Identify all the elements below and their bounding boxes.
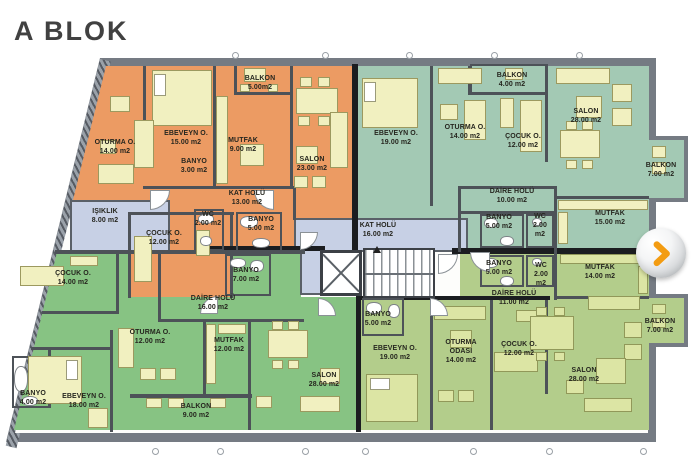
furniture xyxy=(288,321,299,330)
wall xyxy=(290,66,293,188)
furniture xyxy=(536,352,547,361)
furniture xyxy=(652,146,666,158)
floor-plan-page: A BLOK OTURMA O.14.00 m2EBEVEYN O.15.00 … xyxy=(0,0,700,466)
fixture xyxy=(200,236,212,246)
furniture xyxy=(268,84,278,92)
furniture xyxy=(458,390,474,402)
furniture xyxy=(272,321,283,330)
dimension-tick xyxy=(546,448,553,455)
fixture xyxy=(252,238,270,248)
furniture xyxy=(296,88,338,114)
wall xyxy=(293,186,296,220)
wall xyxy=(110,330,113,432)
furniture xyxy=(134,120,154,168)
furniture xyxy=(494,352,538,372)
dimension-tick xyxy=(491,52,498,59)
wall xyxy=(158,252,161,322)
wall xyxy=(248,322,251,430)
furniture xyxy=(554,352,565,361)
furniture xyxy=(110,96,130,112)
furniture xyxy=(536,307,547,316)
floor-plan: OTURMA O.14.00 m2EBEVEYN O.15.00 m2BANYO… xyxy=(0,0,700,466)
fixture xyxy=(230,258,246,268)
wall xyxy=(556,196,649,199)
furniture xyxy=(140,368,156,380)
furniture xyxy=(240,144,264,166)
furniture xyxy=(566,121,577,130)
wall xyxy=(554,252,557,300)
wall xyxy=(143,66,146,128)
wall xyxy=(430,66,433,206)
furniture xyxy=(240,84,250,92)
furniture xyxy=(530,316,574,350)
dimension-tick xyxy=(640,448,647,455)
furniture xyxy=(624,322,642,338)
furniture xyxy=(438,68,482,84)
wall xyxy=(458,186,556,189)
dimension-tick xyxy=(322,52,329,59)
dimension-tick xyxy=(302,448,309,455)
furniture xyxy=(300,396,340,412)
fixture xyxy=(532,258,542,266)
furniture xyxy=(505,68,523,80)
furniture xyxy=(566,380,584,394)
furniture xyxy=(330,112,348,168)
fixture xyxy=(14,366,28,392)
dimension-tick xyxy=(217,448,224,455)
stair-landing-line xyxy=(365,273,433,275)
dimension-tick xyxy=(470,448,477,455)
furniture xyxy=(584,398,632,412)
wall xyxy=(128,212,131,298)
wall xyxy=(143,186,293,189)
furniture xyxy=(464,100,486,140)
fixture xyxy=(500,236,514,246)
furniture xyxy=(582,121,593,130)
fixture xyxy=(500,276,514,286)
wall xyxy=(42,311,118,314)
elevator-shaft xyxy=(320,250,362,296)
furniture xyxy=(244,68,266,82)
chevron-right-icon xyxy=(644,236,678,270)
furniture xyxy=(320,368,340,384)
dimension-tick xyxy=(576,52,583,59)
furniture xyxy=(450,330,472,348)
furniture xyxy=(70,256,98,266)
furniture xyxy=(588,296,640,310)
wall xyxy=(430,300,433,430)
furniture xyxy=(20,266,64,286)
fixture xyxy=(388,304,400,318)
fixture xyxy=(250,260,264,272)
furniture xyxy=(288,360,299,369)
wall xyxy=(234,66,237,94)
furniture xyxy=(318,77,330,87)
furniture xyxy=(624,344,642,360)
furniture xyxy=(558,200,648,210)
wall xyxy=(352,64,358,252)
furniture xyxy=(558,212,568,244)
wall xyxy=(116,252,119,314)
furniture xyxy=(652,304,666,314)
furniture xyxy=(100,140,116,154)
fixture xyxy=(22,396,38,406)
furniture xyxy=(364,82,376,102)
furniture xyxy=(160,368,176,380)
wall xyxy=(234,92,292,95)
furniture xyxy=(66,360,78,380)
furniture xyxy=(652,318,666,328)
dimension-tick xyxy=(406,52,413,59)
furniture xyxy=(612,108,632,126)
furniture xyxy=(218,324,246,334)
furniture xyxy=(294,176,308,188)
furniture xyxy=(146,398,162,408)
fixture xyxy=(484,218,498,228)
furniture xyxy=(272,360,283,369)
fixture xyxy=(198,214,214,224)
hall-column-zone xyxy=(300,250,322,295)
furniture xyxy=(438,390,454,402)
fixture xyxy=(366,302,382,314)
furniture xyxy=(134,236,152,282)
furniture xyxy=(312,176,326,188)
next-arrow-button[interactable] xyxy=(636,228,686,278)
furniture xyxy=(296,146,318,164)
wall xyxy=(31,347,111,350)
furniture xyxy=(98,164,134,184)
furniture xyxy=(556,68,610,84)
furniture xyxy=(652,162,666,174)
furniture xyxy=(520,100,542,152)
dimension-tick xyxy=(232,52,239,59)
furniture xyxy=(560,130,600,158)
fixture xyxy=(532,218,542,226)
furniture xyxy=(300,77,312,87)
furniture xyxy=(298,116,310,126)
stair-direction-arrow xyxy=(373,246,381,253)
furniture xyxy=(566,160,577,169)
furniture xyxy=(168,398,184,408)
furniture xyxy=(582,160,593,169)
wall xyxy=(356,295,361,432)
furniture xyxy=(118,328,134,368)
furniture xyxy=(210,398,226,408)
furniture xyxy=(370,378,390,390)
furniture xyxy=(576,96,602,118)
furniture xyxy=(560,254,648,264)
furniture xyxy=(612,84,632,102)
wall xyxy=(490,300,493,430)
furniture xyxy=(206,324,216,384)
furniture xyxy=(88,408,108,428)
furniture xyxy=(440,104,458,120)
furniture xyxy=(256,396,272,408)
furniture xyxy=(500,98,514,128)
furniture xyxy=(216,96,228,184)
furniture xyxy=(596,358,626,384)
furniture xyxy=(318,116,330,126)
furniture xyxy=(554,307,565,316)
furniture xyxy=(154,74,166,96)
fixture xyxy=(240,216,258,228)
dimension-tick xyxy=(152,448,159,455)
staircase xyxy=(363,248,435,298)
furniture xyxy=(268,330,308,358)
dimension-tick xyxy=(362,448,369,455)
wall xyxy=(458,186,461,252)
